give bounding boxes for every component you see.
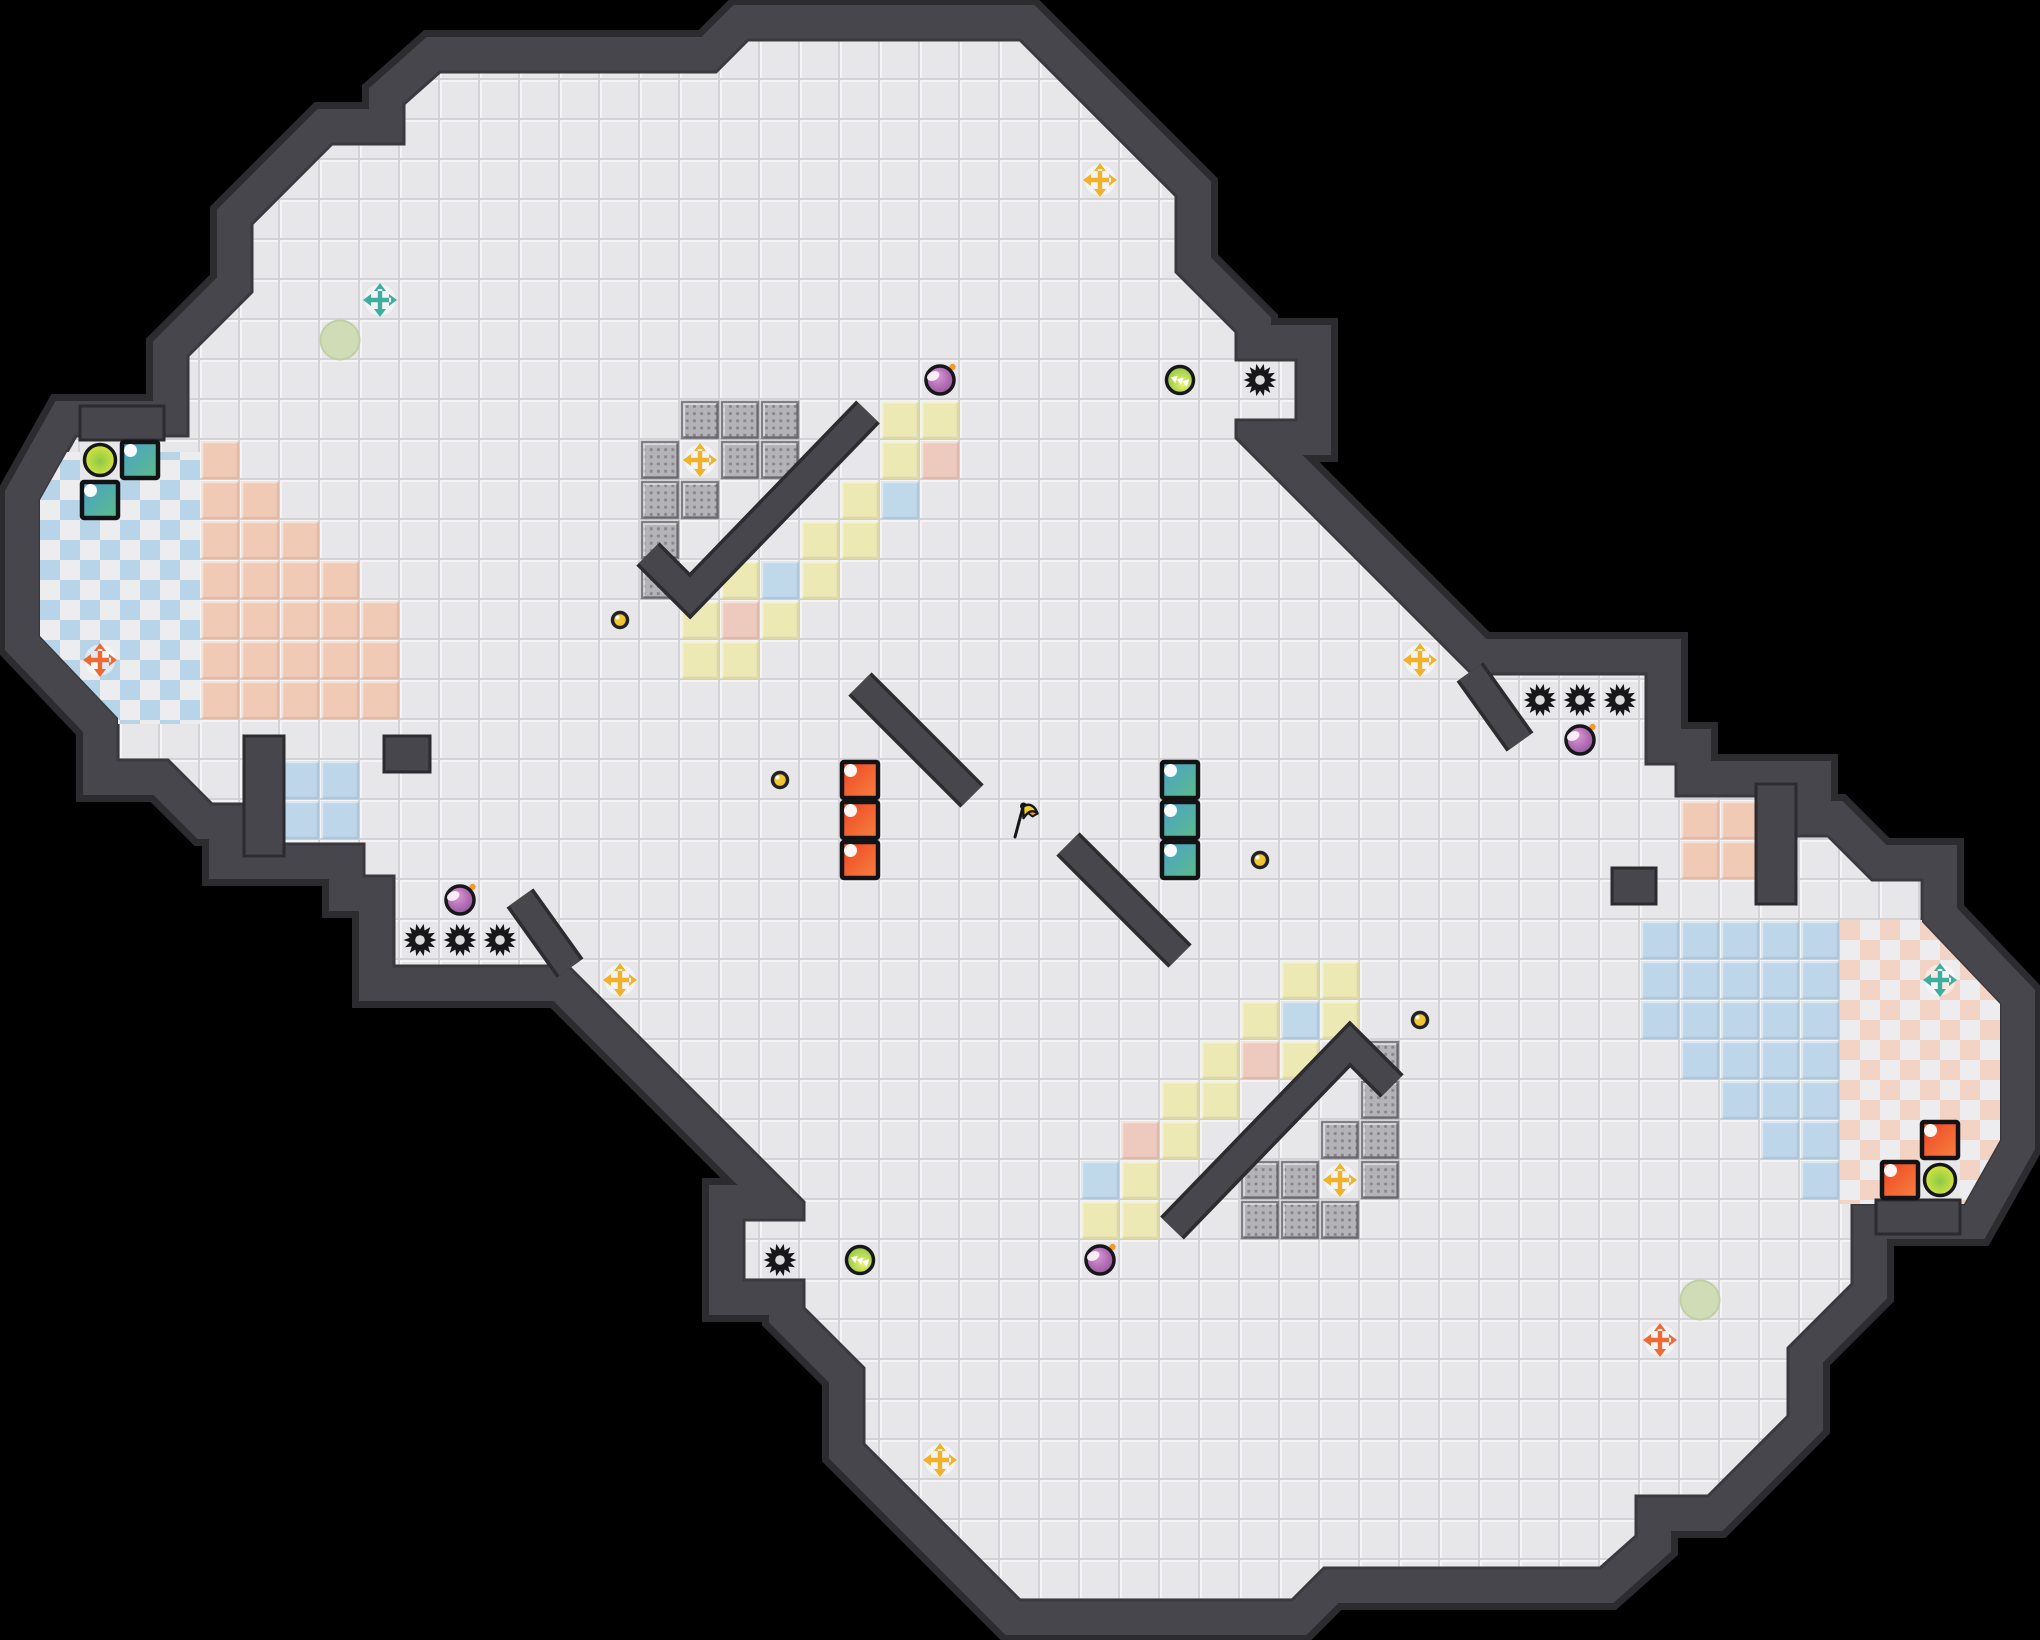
inner-wall	[384, 736, 430, 772]
team-tile-blue	[1801, 961, 1839, 999]
team-tile-red	[201, 481, 239, 519]
team-tile-blue	[1721, 1041, 1759, 1079]
team-tile-blue	[1641, 1001, 1679, 1039]
team-tile-blue	[1801, 1081, 1839, 1119]
bomb-icon[interactable]	[1085, 1244, 1115, 1274]
team-tile-red	[241, 641, 279, 679]
speed-tile-yellow	[1201, 1081, 1239, 1119]
block-tile	[1282, 1202, 1318, 1238]
gate-red[interactable]	[1922, 1122, 1958, 1158]
team-tile-blue	[1681, 921, 1719, 959]
speed-tile-blue	[761, 561, 799, 599]
button-icon[interactable]	[613, 613, 628, 628]
block-tile	[1282, 1162, 1318, 1198]
gate-teal[interactable]	[1162, 842, 1198, 878]
speed-tile-yellow	[801, 521, 839, 559]
button-icon[interactable]	[1253, 853, 1268, 868]
team-tile-red	[281, 601, 319, 639]
speed-tile-yellow	[1161, 1121, 1199, 1159]
team-tile-blue	[1761, 1081, 1799, 1119]
team-tile-red	[361, 641, 399, 679]
soft-circle-marker	[1681, 1281, 1720, 1320]
team-tile-red	[1721, 841, 1759, 879]
speed-tile-yellow	[801, 561, 839, 599]
speed-tile-pink	[1241, 1041, 1279, 1079]
boost-icon[interactable]	[1167, 367, 1194, 394]
boost-icon[interactable]	[847, 1247, 874, 1274]
team-tile-blue	[1761, 961, 1799, 999]
gate-red[interactable]	[842, 802, 878, 838]
bomb-icon[interactable]	[1565, 724, 1595, 754]
team-tile-blue	[1721, 921, 1759, 959]
speed-tile-yellow	[881, 441, 919, 479]
gate-red[interactable]	[842, 762, 878, 798]
team-tile-red	[241, 521, 279, 559]
team-tile-red	[201, 641, 239, 679]
team-tile-red	[281, 681, 319, 719]
game-map-viewport[interactable]	[0, 0, 2040, 1640]
team-tile-red	[1721, 801, 1759, 839]
block-tile	[642, 442, 678, 478]
team-tile-red	[321, 681, 359, 719]
team-tile-red	[321, 561, 359, 599]
inner-wall	[80, 406, 164, 440]
team-tile-blue	[1801, 1041, 1839, 1079]
speed-tile-yellow	[841, 521, 879, 559]
block-tile	[722, 442, 758, 478]
team-tile-red	[241, 481, 279, 519]
team-tile-red	[241, 601, 279, 639]
speed-tile-yellow	[1241, 1001, 1279, 1039]
team-tile-blue	[1761, 921, 1799, 959]
team-tile-red	[241, 681, 279, 719]
team-tile-blue	[1681, 1041, 1719, 1079]
speed-tile-yellow	[721, 641, 759, 679]
team-tile-blue	[1801, 1001, 1839, 1039]
speed-tile-yellow	[1121, 1201, 1159, 1239]
gate-red[interactable]	[1882, 1162, 1918, 1198]
block-tile	[682, 402, 718, 438]
block-tile	[762, 402, 798, 438]
block-tile	[722, 402, 758, 438]
arena-map[interactable]	[0, 0, 2040, 1640]
speed-tile-yellow	[761, 601, 799, 639]
gate-teal[interactable]	[82, 482, 118, 518]
team-tile-blue	[1761, 1121, 1799, 1159]
speed-tile-yellow	[1121, 1161, 1159, 1199]
team-tile-red	[241, 561, 279, 599]
team-tile-blue	[1801, 921, 1839, 959]
speed-tile-yellow	[1161, 1081, 1199, 1119]
team-tile-red	[361, 681, 399, 719]
inner-wall	[244, 736, 284, 856]
team-tile-red	[321, 641, 359, 679]
button-icon[interactable]	[1413, 1013, 1428, 1028]
speed-tile-yellow	[1081, 1201, 1119, 1239]
team-tile-blue	[1801, 1121, 1839, 1159]
speed-tile-yellow	[881, 401, 919, 439]
team-tile-red	[321, 601, 359, 639]
team-tile-red	[201, 441, 239, 479]
speed-tile-blue	[881, 481, 919, 519]
team-tile-red	[201, 601, 239, 639]
bomb-icon[interactable]	[925, 364, 955, 394]
block-tile	[682, 482, 718, 518]
team-tile-red	[281, 641, 319, 679]
block-tile	[1362, 1162, 1398, 1198]
team-tile-red	[281, 561, 319, 599]
powerup-icon[interactable]	[85, 445, 116, 476]
powerup-icon[interactable]	[1925, 1165, 1956, 1196]
speed-tile-yellow	[1321, 961, 1359, 999]
team-tile-blue	[1761, 1041, 1799, 1079]
inner-wall	[1756, 784, 1796, 904]
speed-tile-pink	[1121, 1121, 1159, 1159]
speed-tile-pink	[721, 601, 759, 639]
block-tile	[642, 482, 678, 518]
block-tile	[1322, 1122, 1358, 1158]
team-tile-blue	[1641, 961, 1679, 999]
team-tile-blue	[281, 801, 319, 839]
block-tile	[1322, 1202, 1358, 1238]
block-tile	[1242, 1202, 1278, 1238]
team-tile-blue	[1681, 961, 1719, 999]
team-tile-blue	[1761, 1001, 1799, 1039]
bomb-icon[interactable]	[445, 884, 475, 914]
speed-tile-yellow	[921, 401, 959, 439]
gate-teal[interactable]	[1162, 762, 1198, 798]
team-tile-blue	[1721, 961, 1759, 999]
team-tile-red	[1681, 801, 1719, 839]
team-tile-blue	[1721, 1001, 1759, 1039]
team-tile-blue	[1641, 921, 1679, 959]
speed-tile-blue	[1081, 1161, 1119, 1199]
gate-red[interactable]	[842, 842, 878, 878]
inner-wall	[1876, 1200, 1960, 1234]
gate-teal[interactable]	[1162, 802, 1198, 838]
team-tile-blue	[281, 761, 319, 799]
team-tile-red	[281, 521, 319, 559]
team-tile-blue	[1721, 1081, 1759, 1119]
team-tile-red	[1681, 841, 1719, 879]
team-tile-red	[361, 601, 399, 639]
soft-circle-marker	[321, 321, 360, 360]
team-tile-blue	[1681, 1001, 1719, 1039]
speed-tile-blue	[1281, 1001, 1319, 1039]
team-tile-blue	[1801, 1161, 1839, 1199]
inner-wall	[1612, 868, 1656, 904]
block-tile	[1362, 1122, 1398, 1158]
speed-tile-yellow	[1281, 961, 1319, 999]
speed-tile-yellow	[681, 641, 719, 679]
speed-tile-yellow	[1201, 1041, 1239, 1079]
speed-tile-pink	[921, 441, 959, 479]
button-icon[interactable]	[773, 773, 788, 788]
team-tile-red	[201, 521, 239, 559]
gate-teal[interactable]	[122, 442, 158, 478]
team-tile-blue	[321, 801, 359, 839]
team-tile-blue	[321, 761, 359, 799]
team-tile-red	[201, 681, 239, 719]
team-tile-red	[201, 561, 239, 599]
speed-tile-yellow	[841, 481, 879, 519]
